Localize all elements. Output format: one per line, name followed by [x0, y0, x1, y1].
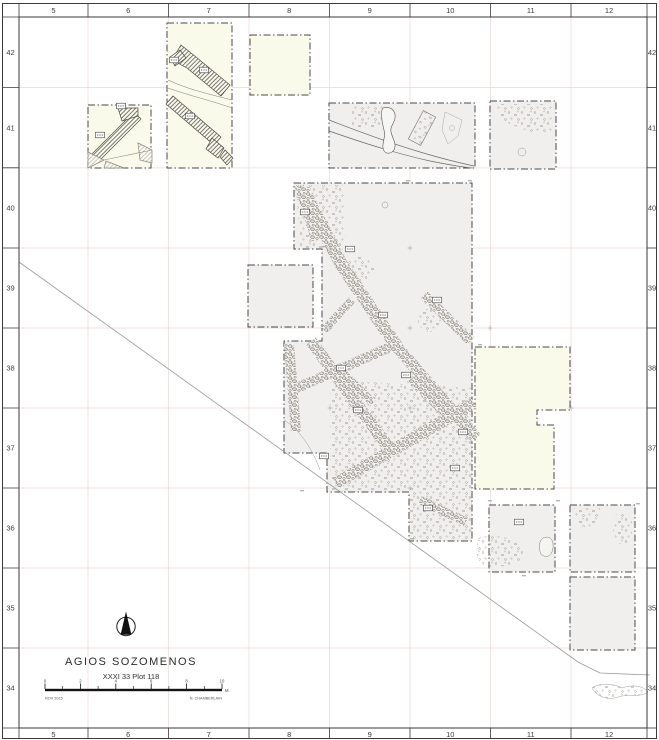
locus-label-box [117, 103, 126, 109]
locus-label-box [379, 312, 388, 318]
axis-label: 10 [446, 730, 454, 739]
locus-label-box [337, 365, 346, 371]
axis-label: 40 [6, 204, 14, 213]
axis-labels-top: 56789101112 [51, 6, 613, 15]
axis-label: 38 [648, 364, 656, 373]
axis-label: 37 [6, 444, 14, 453]
axis-label: 35 [648, 604, 656, 613]
axis-label: 42 [6, 48, 14, 57]
locus-label-box [200, 67, 209, 73]
scale-unit: M. [225, 688, 230, 693]
axis-label: 5 [51, 730, 55, 739]
axis-label: 6 [126, 6, 130, 15]
axis-label: 39 [6, 284, 14, 293]
axis-label: 11 [527, 730, 535, 739]
axis-label: 41 [6, 123, 14, 132]
site-plan-page: 56789101112 56789101112 4241403938373635… [0, 0, 659, 740]
axis-label: 9 [368, 6, 372, 15]
locus-label-box [320, 453, 329, 459]
axis-label: 42 [648, 48, 656, 57]
axis-label: 8 [287, 6, 291, 15]
axis-label: 35 [6, 604, 14, 613]
scale-date-note: NOV 2015 [45, 697, 63, 701]
site-plan-drawing: 56789101112 56789101112 4241403938373635… [0, 0, 659, 740]
axis-label: 7 [207, 6, 211, 15]
axis-label: 34 [6, 684, 14, 693]
locus-label-box [301, 209, 310, 215]
locus-label-box [515, 519, 524, 525]
axis-label: 34 [648, 684, 656, 693]
axis-label: 12 [605, 730, 613, 739]
trench-plot-north-wide [329, 103, 475, 168]
axis-label: 6 [126, 730, 130, 739]
locus-label-box [170, 57, 179, 63]
axis-label: 11 [527, 6, 535, 15]
axis-label: 38 [6, 364, 14, 373]
locus-label-box [354, 407, 363, 413]
trench-plot-nw-square [250, 35, 310, 95]
axis-label: 39 [648, 284, 656, 293]
axis-label: 10 [446, 6, 454, 15]
axis-label: 37 [648, 444, 656, 453]
locus-label-box [451, 465, 460, 471]
axis-label: 7 [207, 730, 211, 739]
locus-label-box [433, 297, 442, 303]
locus-label-box [96, 132, 105, 138]
axis-labels-bottom: 56789101112 [51, 730, 613, 739]
axis-label: 36 [648, 524, 656, 533]
locus-label-box [402, 372, 411, 378]
axis-labels-right: 424140393837363534 [648, 48, 656, 693]
axis-label: 12 [605, 6, 613, 15]
axis-label: 5 [51, 6, 55, 15]
axis-label: 8 [287, 730, 291, 739]
scale-author-note: N. CHAMBERLAIN [190, 697, 223, 701]
scale-tick-label: 10 [220, 679, 225, 684]
locus-label-box [346, 246, 355, 252]
trench-plot-west-square [248, 265, 313, 327]
locus-label-box [424, 505, 433, 511]
axis-label: 9 [368, 730, 372, 739]
axis-labels-left: 424140393837363534 [6, 48, 14, 693]
axis-label: 36 [6, 524, 14, 533]
axis-label: 41 [648, 123, 656, 132]
axis-label: 40 [648, 204, 656, 213]
scale-bar-rule [45, 689, 222, 691]
locus-label-box [186, 113, 195, 119]
locus-label-box [459, 429, 468, 435]
plan-title: AGIOS SOZOMENOS [65, 656, 197, 668]
trench-plot-se-3 [570, 577, 635, 650]
